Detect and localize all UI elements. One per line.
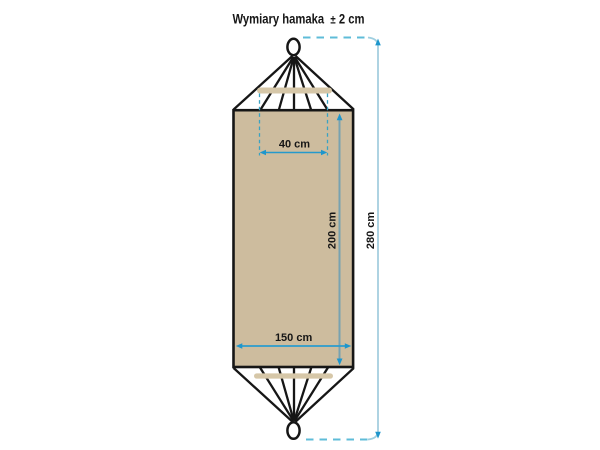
svg-text:Wymiary hamaka ± 2 cm: Wymiary hamaka ± 2 cm: [233, 11, 365, 27]
svg-text:200 cm: 200 cm: [327, 212, 339, 250]
svg-text:150 cm: 150 cm: [275, 332, 313, 344]
svg-text:280 cm: 280 cm: [365, 212, 377, 250]
svg-text:40 cm: 40 cm: [279, 138, 310, 150]
